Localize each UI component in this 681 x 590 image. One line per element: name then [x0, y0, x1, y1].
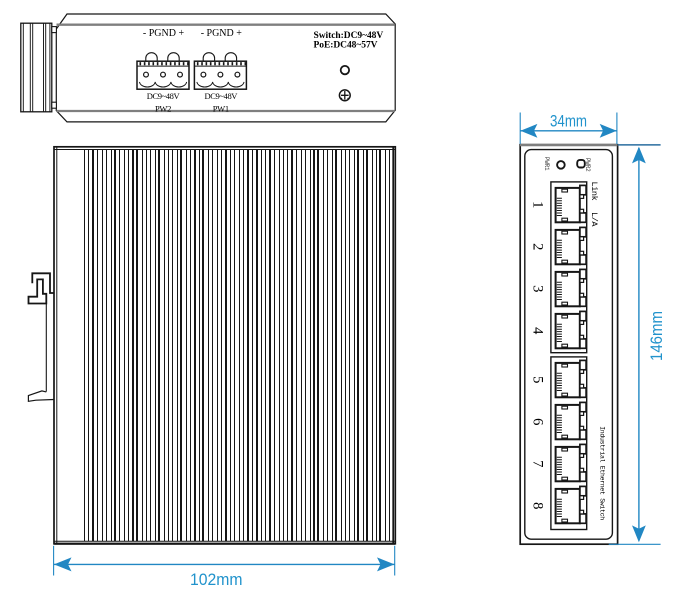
svg-text:- PGND +: - PGND +	[143, 28, 185, 39]
svg-text:PWR1: PWR1	[543, 157, 550, 171]
svg-text:34mm: 34mm	[550, 112, 587, 130]
svg-text:1: 1	[530, 201, 546, 208]
svg-text:7: 7	[530, 460, 546, 467]
svg-text:PW1: PW1	[213, 103, 229, 113]
svg-text:5: 5	[530, 376, 546, 383]
svg-text:6: 6	[530, 418, 546, 425]
svg-text:8: 8	[530, 502, 546, 509]
svg-text:146mm: 146mm	[648, 311, 666, 361]
svg-text:- PGND +: - PGND +	[201, 28, 243, 39]
svg-text:2: 2	[530, 243, 546, 250]
svg-text:DC9~48V: DC9~48V	[205, 91, 239, 101]
svg-text:3: 3	[530, 285, 546, 292]
svg-text:PWR2: PWR2	[584, 158, 591, 172]
svg-text:102mm: 102mm	[190, 571, 243, 589]
svg-text:DC9~48V: DC9~48V	[147, 91, 181, 101]
svg-text:PoE:DC48~57V: PoE:DC48~57V	[314, 40, 378, 50]
svg-text:PW2: PW2	[155, 103, 171, 113]
svg-text:L/A: L/A	[589, 212, 599, 227]
svg-text:4: 4	[530, 327, 546, 335]
svg-text:Link: Link	[589, 182, 599, 201]
svg-text:Industrial Ethernet Switch: Industrial Ethernet Switch	[598, 426, 605, 520]
